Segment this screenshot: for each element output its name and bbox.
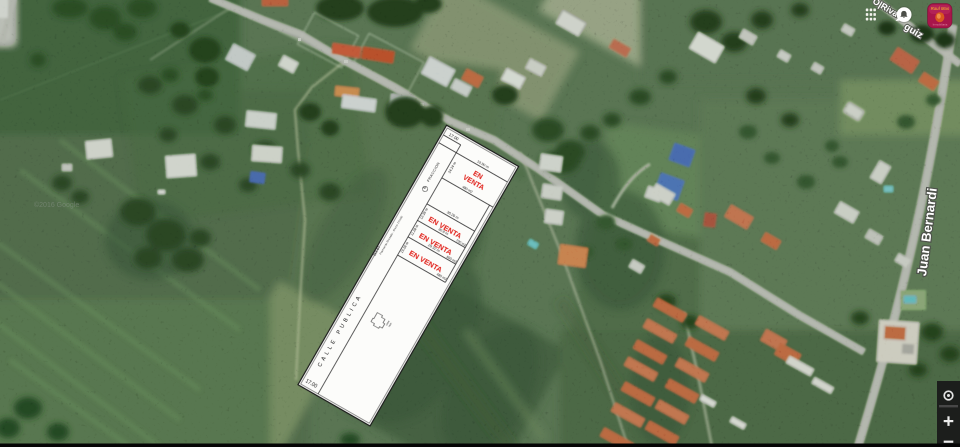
svg-text:Inmobiliaria: Inmobiliaria [933,23,948,27]
svg-text:Raul Mas: Raul Mas [931,6,950,11]
svg-text:©2016 Google: ©2016 Google [34,201,79,209]
